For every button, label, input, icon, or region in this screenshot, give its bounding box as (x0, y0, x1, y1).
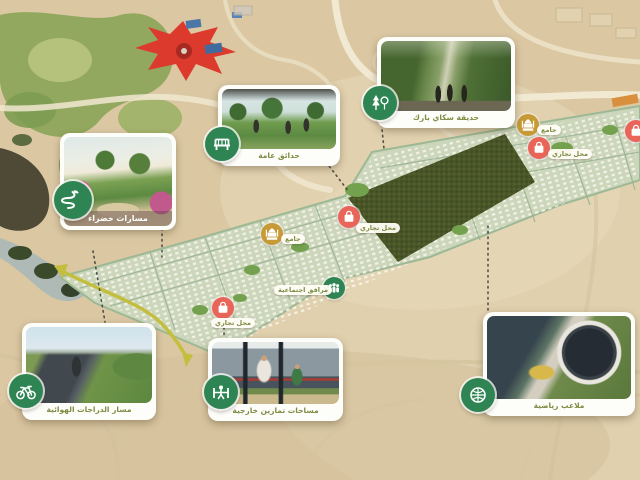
bicycle-track-photo (26, 327, 152, 403)
sports-courts-photo (487, 316, 631, 399)
mosque-label: جامع (281, 234, 305, 244)
callout-card-sports-courts: ملاعب رياضية (483, 312, 635, 416)
callout-card-green-tracks: مسارات خضراء (60, 133, 176, 230)
community-label: مرافق اجتماعية (274, 285, 332, 295)
mosque-label: جامع (537, 125, 561, 135)
sky-park-label: حديقة سكاي بارك (381, 111, 511, 124)
callout-card-outdoor-exercise: مساحات تمارين خارجية (208, 338, 343, 421)
mosque-icon (517, 114, 539, 136)
sports-courts-label: ملاعب رياضية (487, 399, 631, 412)
bicycle-track-label: مسار الدراجات الهوائية (26, 403, 152, 416)
shop-label: محل تجاري (211, 318, 255, 328)
callout-card-bicycle-track: مسار الدراجات الهوائية (22, 323, 156, 420)
callout-card-sky-park: حديقة سكاي بارك (377, 37, 515, 128)
shop-label: محل تجاري (356, 223, 400, 233)
bicycle-icon (9, 374, 43, 408)
shop-icon (528, 137, 550, 159)
masterplan-map: جامع محل تجاري مرافق اجتماعية محل تجاري … (0, 0, 640, 480)
exercise-icon (204, 375, 238, 409)
public-parks-photo (222, 89, 336, 149)
callout-card-public-parks: حدائق عامة (218, 85, 340, 166)
public-parks-label: حدائق عامة (222, 149, 336, 162)
outdoor-exercise-label: مساحات تمارين خارجية (212, 404, 339, 417)
basketball-icon (461, 378, 495, 412)
shop-icon (212, 297, 234, 319)
bench-icon (205, 127, 239, 161)
shop-icon (625, 120, 640, 142)
mosque-icon (261, 223, 283, 245)
sky-park-photo (381, 41, 511, 111)
trees-icon (363, 86, 397, 120)
winding-path-icon (54, 181, 92, 219)
shop-label: محل تجاري (548, 149, 592, 159)
